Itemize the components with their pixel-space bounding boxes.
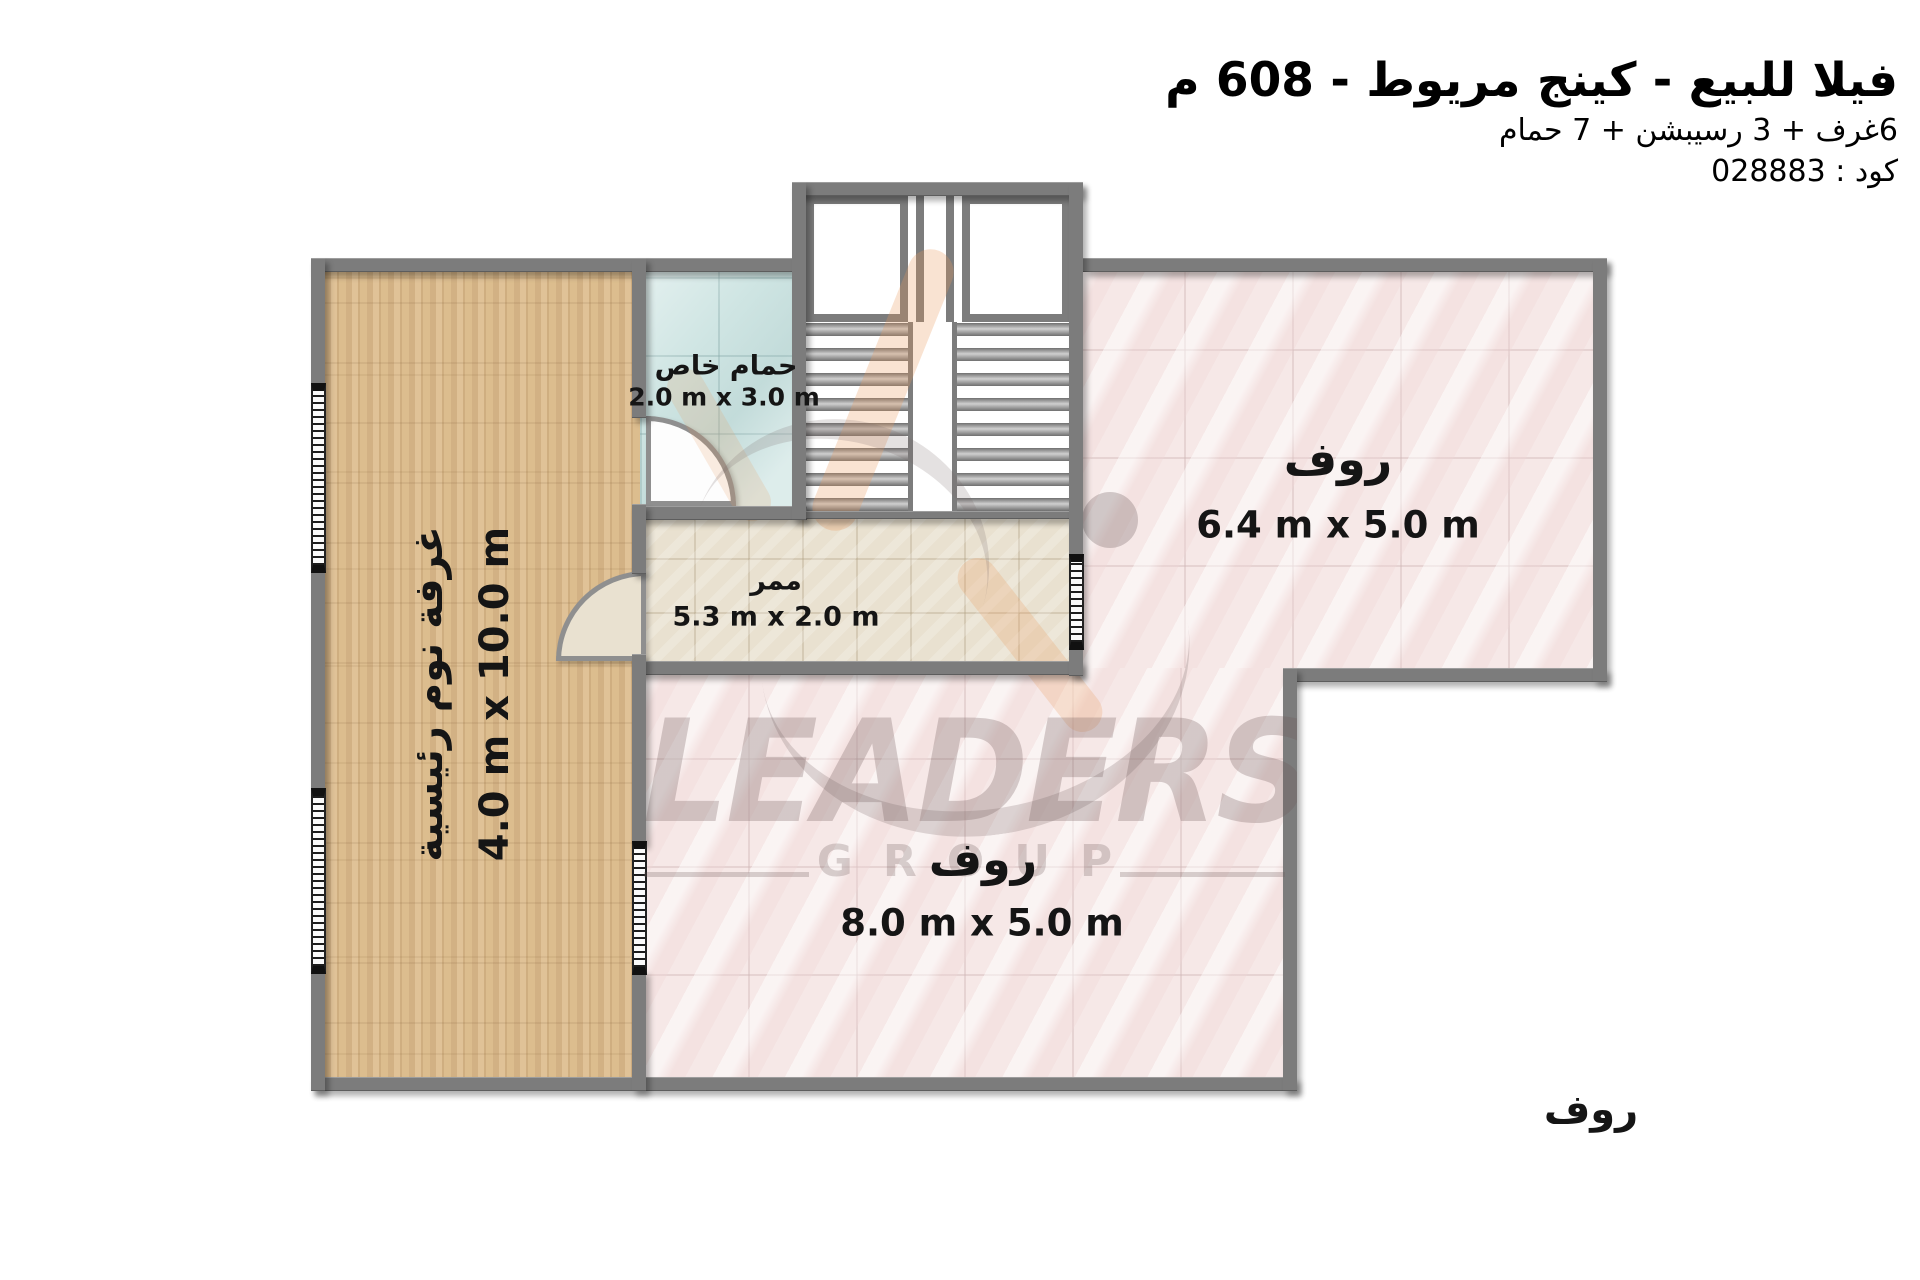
staircase (806, 196, 1070, 512)
window-icon (311, 383, 326, 573)
wall (632, 654, 646, 844)
stair-tread (957, 348, 1070, 361)
corridor-label: ممر (750, 566, 802, 597)
wall (792, 182, 1082, 196)
stair-tread (957, 323, 1070, 336)
bedroom-dimensions: 4.0 m x 10.0 m (462, 504, 528, 884)
bathroom-label: حمام خاص (655, 351, 798, 382)
stair-flight-left (806, 323, 908, 512)
wall (632, 661, 1082, 675)
stair-tread (957, 448, 1070, 461)
bathroom-dimensions: 2.0 m x 3.0 m (628, 383, 820, 412)
stair-tread (957, 423, 1070, 436)
wall (1593, 258, 1607, 682)
wall (806, 511, 1070, 519)
stair-rail-bar (946, 196, 954, 322)
floor-plan-page: فيلا للبيع - كينج مريوط - 608 م 6غرف + 3… (0, 0, 1920, 1280)
roof-bottom-dimensions: 8.0 m x 5.0 m (840, 902, 1124, 945)
wall (311, 258, 792, 272)
wall (632, 970, 646, 1091)
bedroom-label: غرفة نوم رئيسية (396, 504, 462, 884)
stair-tread (806, 473, 908, 486)
wall (1083, 258, 1607, 272)
wall (632, 504, 646, 574)
stair-tread (957, 398, 1070, 411)
stair-tread (806, 373, 908, 386)
stair-tread (806, 323, 908, 336)
roof-right-label: روف (1284, 432, 1393, 486)
corridor-dimensions: 5.3 m x 2.0 m (673, 602, 880, 633)
listing-header: فيلا للبيع - كينج مريوط - 608 م 6غرف + 3… (1165, 50, 1898, 192)
roof-outside-label: روف (1544, 1087, 1638, 1133)
stair-tread (806, 498, 908, 511)
roof-right-dimensions: 6.4 m x 5.0 m (1196, 504, 1480, 547)
stair-tread (806, 423, 908, 436)
listing-title: فيلا للبيع - كينج مريوط - 608 م (1165, 50, 1898, 111)
wall (632, 506, 807, 520)
stair-tread (806, 348, 908, 361)
bedroom-label-block: غرفة نوم رئيسية 4.0 m x 10.0 m (392, 504, 532, 884)
corridor-floor (640, 513, 1076, 668)
stair-tread (957, 498, 1070, 511)
stair-rail-bar (916, 196, 924, 322)
stair-landing-left (806, 196, 908, 322)
listing-code: كود : 028883 (1245, 152, 1898, 193)
wall (311, 1077, 1297, 1091)
stair-tread (957, 373, 1070, 386)
stair-divider (908, 322, 913, 512)
stair-tread (806, 398, 908, 411)
wall (1283, 668, 1297, 1091)
stair-landing-right (962, 196, 1070, 322)
stair-flight-right (957, 323, 1070, 512)
stair-divider (952, 322, 957, 512)
stair-tread (806, 448, 908, 461)
window-icon (1069, 554, 1084, 650)
window-icon (311, 788, 326, 974)
window-icon (632, 841, 647, 975)
roof-bottom-label: روف (929, 832, 1038, 886)
stair-tread (957, 473, 1070, 486)
wall (1283, 668, 1607, 682)
listing-subtitle: 6غرف + 3 رسيبشن + 7 حمام (1165, 111, 1898, 152)
